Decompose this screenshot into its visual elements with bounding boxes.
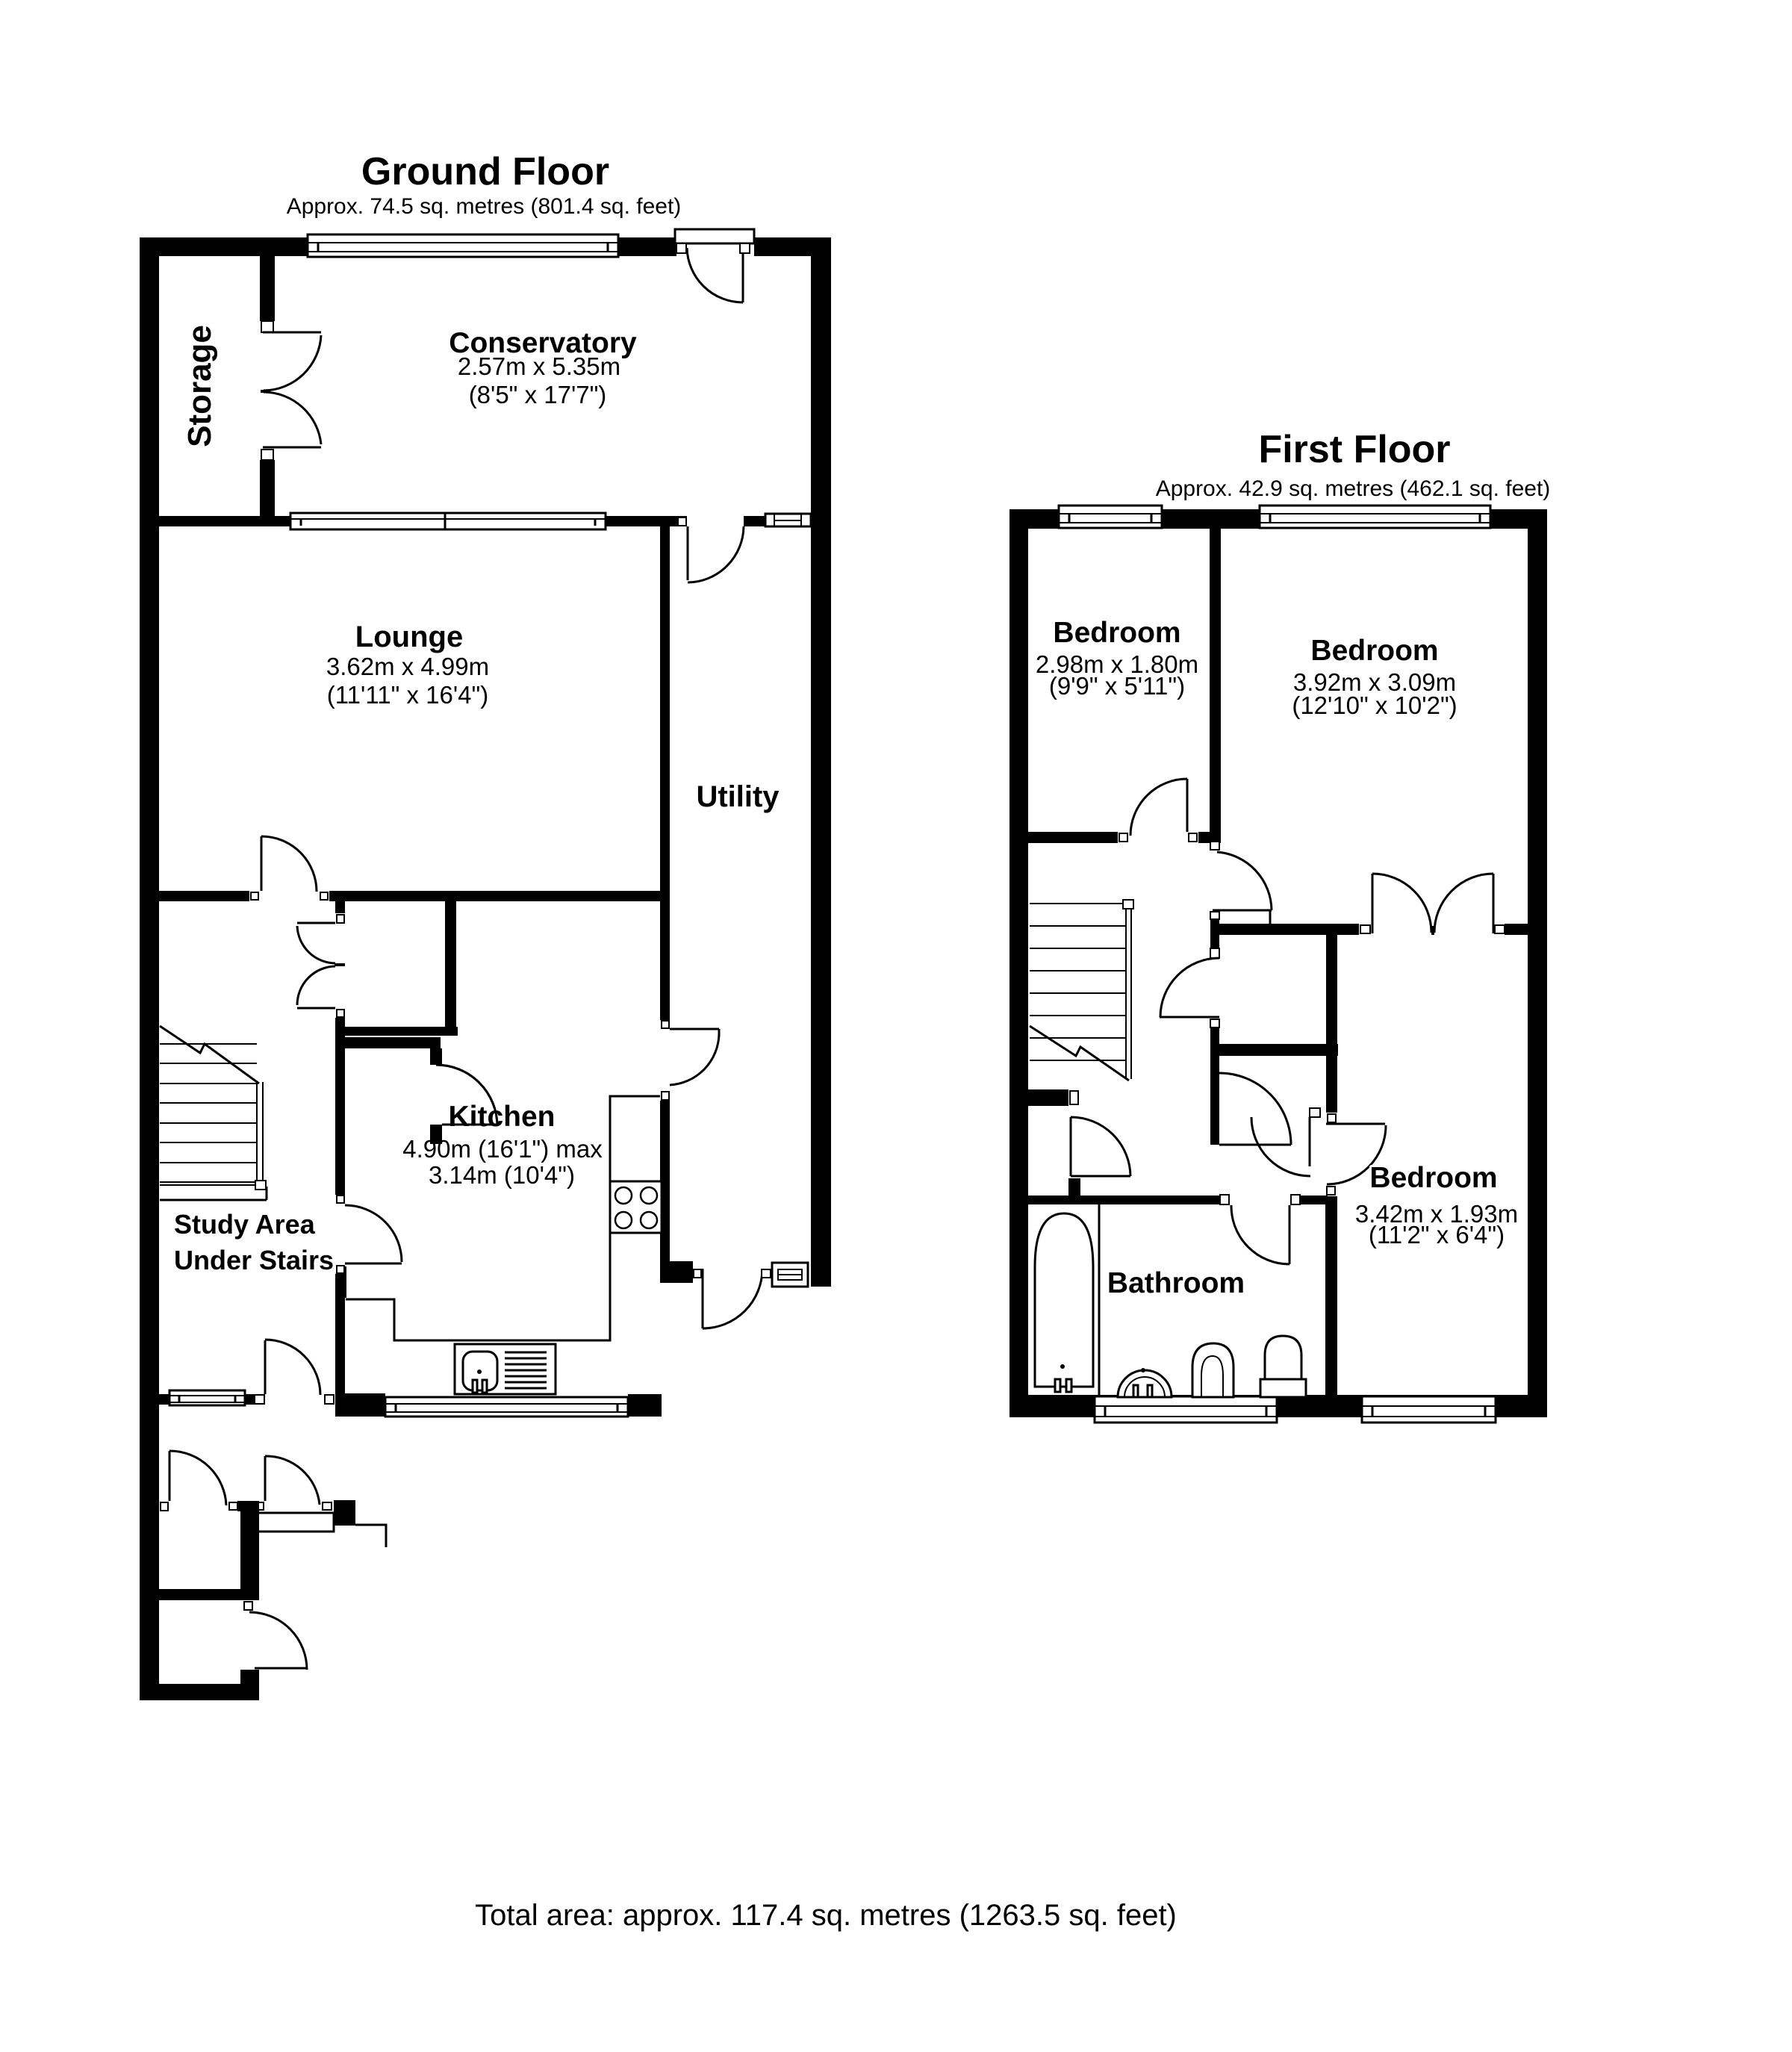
svg-text:(11'2" x 6'4"): (11'2" x 6'4"): [1369, 1221, 1505, 1249]
svg-text:First Floor: First Floor: [1258, 428, 1450, 471]
svg-text:Bathroom: Bathroom: [1107, 1267, 1245, 1299]
svg-text:Bedroom: Bedroom: [1310, 635, 1438, 667]
svg-text:(12'10" x 10'2"): (12'10" x 10'2"): [1292, 691, 1457, 719]
svg-text:Bedroom: Bedroom: [1369, 1162, 1497, 1194]
svg-text:Bedroom: Bedroom: [1053, 617, 1180, 649]
svg-text:Kitchen: Kitchen: [448, 1101, 555, 1133]
svg-text:Approx. 42.9 sq. metres (462.: Approx. 42.9 sq. metres (462.1 sq. feet): [1156, 476, 1551, 501]
svg-text:(8'5" x 17'7"): (8'5" x 17'7"): [469, 381, 607, 408]
svg-text:Utility: Utility: [696, 780, 780, 813]
svg-text:Ground Floor: Ground Floor: [361, 150, 609, 193]
svg-text:Approx. 74.5 sq. metres (801.: Approx. 74.5 sq. metres (801.4 sq. feet): [287, 194, 682, 219]
svg-text:Under Stairs: Under Stairs: [174, 1245, 334, 1275]
svg-text:3.62m x 4.99m: 3.62m x 4.99m: [326, 653, 489, 680]
svg-text:3.14m (10'4"): 3.14m (10'4"): [429, 1161, 575, 1189]
svg-text:Total area: approx. 117.4 sq.: Total area: approx. 117.4 sq. metres (12…: [475, 1899, 1177, 1932]
svg-text:(9'9" x 5'11"): (9'9" x 5'11"): [1049, 672, 1185, 700]
svg-text:Storage: Storage: [181, 325, 218, 447]
svg-text:(11'11" x 16'4"): (11'11" x 16'4"): [327, 681, 488, 709]
svg-text:2.57m x 5.35m: 2.57m x 5.35m: [458, 352, 620, 380]
svg-text:Study Area: Study Area: [174, 1209, 316, 1240]
svg-text:Lounge: Lounge: [355, 621, 463, 653]
